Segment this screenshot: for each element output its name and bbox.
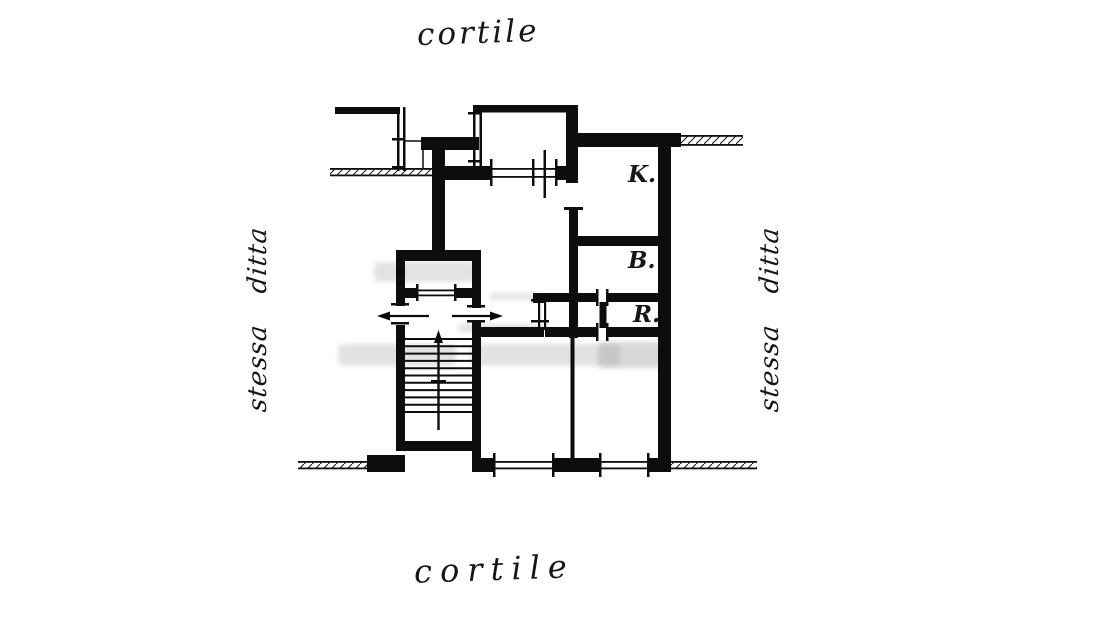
elevator-shaft	[391, 250, 485, 339]
floorplan-page: cortile cortile stessa ditta stessa ditt…	[0, 0, 1096, 622]
floor-plan-drawing	[0, 0, 1096, 622]
staircase	[396, 330, 481, 458]
facade-wall-south	[298, 453, 757, 477]
spine-wall	[432, 137, 445, 259]
party-wall-top-left	[330, 107, 433, 176]
passage-arrows	[377, 312, 503, 321]
interior-partitions	[477, 207, 671, 458]
exterior-wall-right	[658, 133, 671, 472]
